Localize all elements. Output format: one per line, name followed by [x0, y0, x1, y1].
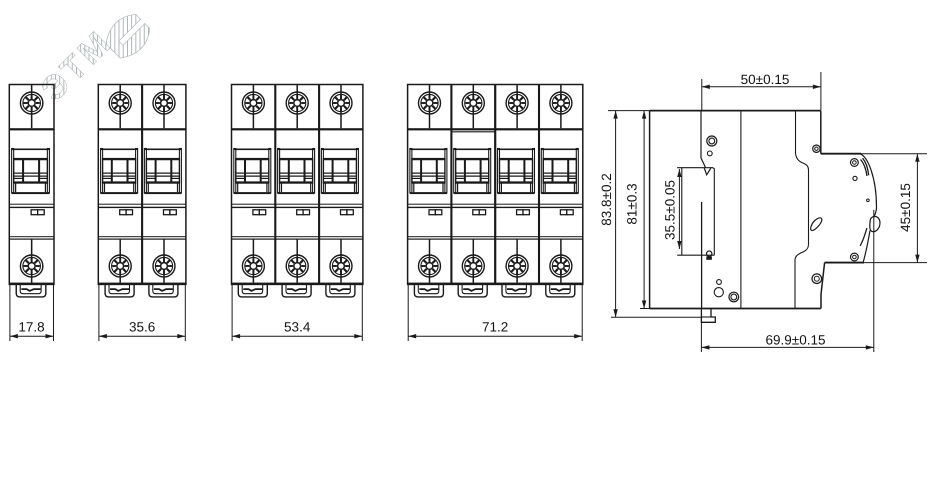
svg-text:35.5±0.05: 35.5±0.05 — [663, 180, 678, 240]
svg-text:71.2: 71.2 — [482, 320, 508, 335]
svg-text:17.8: 17.8 — [18, 320, 44, 335]
svg-text:69.9±0.15: 69.9±0.15 — [766, 333, 826, 348]
svg-text:50±0.15: 50±0.15 — [741, 72, 790, 87]
svg-text:45±0.15: 45±0.15 — [898, 183, 913, 232]
svg-text:83.8±0.2: 83.8±0.2 — [599, 173, 614, 225]
svg-text:53.4: 53.4 — [284, 320, 311, 335]
svg-text:35.6: 35.6 — [129, 320, 155, 335]
svg-text:81±0.3: 81±0.3 — [625, 183, 640, 224]
